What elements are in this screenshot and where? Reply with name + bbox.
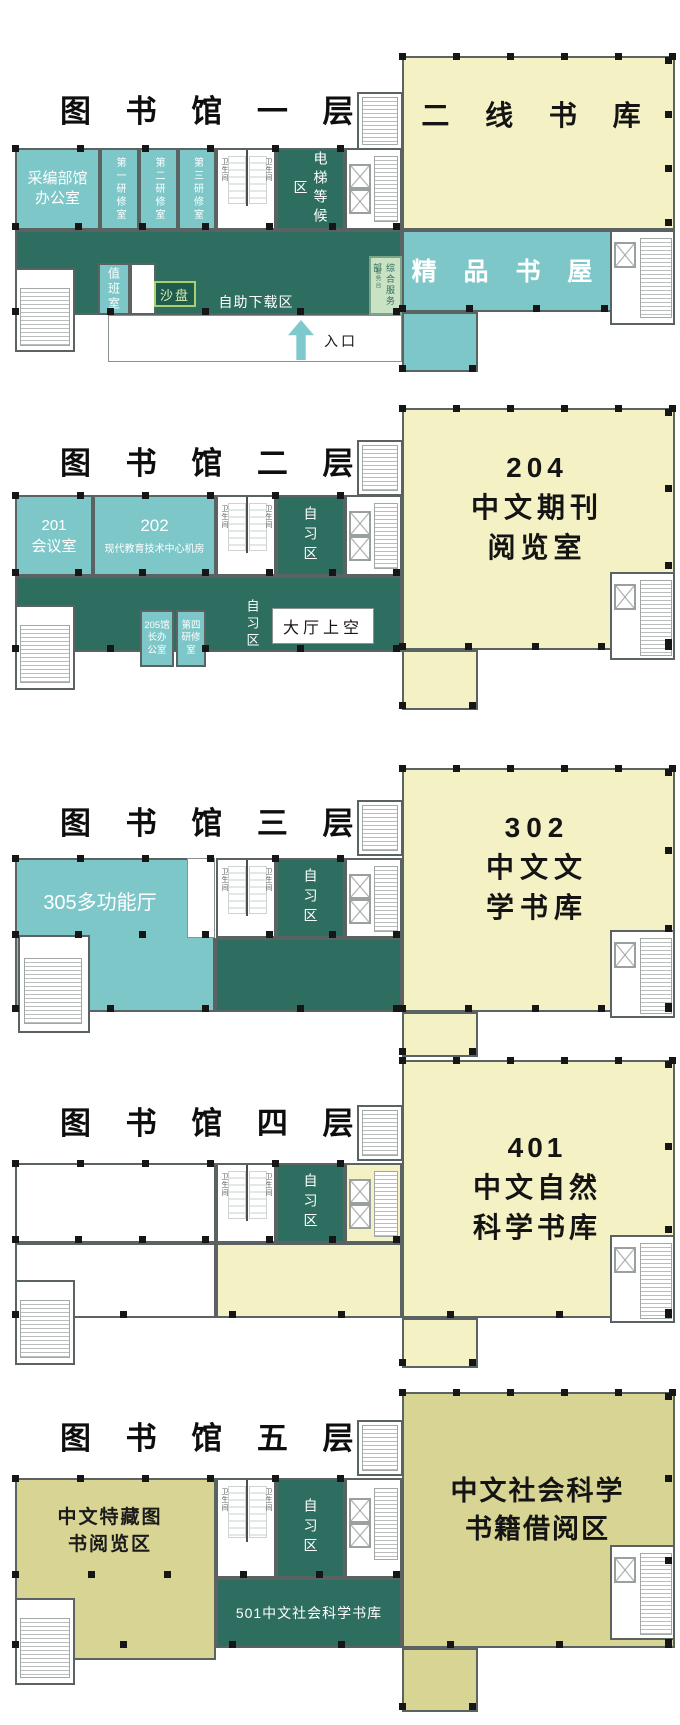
room-social-label: 中文社会科学 书籍借阅区	[405, 1472, 670, 1549]
column-marker	[272, 492, 279, 499]
column-marker	[107, 1005, 114, 1012]
stairs-icon	[640, 1553, 672, 1635]
room-study-4: 第四研修室	[176, 610, 206, 667]
acquisition-label-2: 办公室	[35, 189, 80, 209]
column-marker	[297, 645, 304, 652]
column-marker	[601, 305, 608, 312]
room-302-line1: 中文文	[412, 848, 662, 888]
room-202-tech: 202 现代教育技术中心机房	[93, 495, 216, 576]
column-marker	[453, 53, 460, 60]
room-302-leg	[402, 1012, 478, 1057]
toilets-f3: 卫生间 卫生间	[216, 858, 276, 938]
column-marker	[77, 1475, 84, 1482]
elevator-icon	[349, 536, 371, 561]
column-marker	[229, 1311, 236, 1318]
room-501-stack: 501中文社会科学书库	[216, 1578, 402, 1648]
column-marker	[465, 1005, 472, 1012]
column-marker	[266, 223, 273, 230]
column-marker	[142, 1475, 149, 1482]
column-marker	[337, 1475, 344, 1482]
column-marker	[202, 569, 209, 576]
column-marker	[447, 1311, 454, 1318]
column-marker	[88, 1571, 95, 1578]
room-special-label: 中文特藏图 书阅览区	[25, 1505, 195, 1559]
column-marker	[665, 1226, 672, 1233]
room-305-label: 305多功能厅	[20, 880, 180, 920]
stairs-icon	[20, 625, 70, 683]
toilet-stalls-icon	[228, 1171, 246, 1219]
column-marker	[561, 405, 568, 412]
room-special-line2: 书阅览区	[25, 1532, 195, 1559]
column-marker	[12, 1641, 19, 1648]
column-marker	[665, 1557, 672, 1564]
column-marker	[615, 1389, 622, 1396]
column-marker	[77, 855, 84, 862]
column-marker	[393, 1571, 400, 1578]
toilets-f2: 卫生间 卫生间	[216, 495, 276, 576]
room-study-2: 第二研修室	[139, 148, 178, 230]
column-marker	[316, 1571, 323, 1578]
elevator-icon	[614, 1247, 636, 1273]
column-marker	[207, 492, 214, 499]
elevator-icon	[349, 1204, 371, 1229]
room-study-1: 第一研修室	[100, 148, 139, 230]
column-marker	[75, 569, 82, 576]
stairs-icon	[362, 97, 398, 145]
column-marker	[399, 702, 406, 709]
column-marker	[533, 305, 540, 312]
stairs-icon	[362, 805, 398, 851]
toilet-stalls-icon	[228, 503, 246, 551]
room-401-line1: 中文自然	[412, 1168, 662, 1208]
column-marker	[12, 1236, 19, 1243]
floor2-title: 图 书 馆 二 层	[60, 438, 366, 483]
toilets-f5: 卫生间 卫生间	[216, 1478, 276, 1578]
column-marker	[337, 492, 344, 499]
toilet-divider	[246, 1165, 248, 1221]
column-marker	[665, 1311, 672, 1318]
elevator-icon	[614, 1557, 636, 1583]
toilet-label-left: 卫生间	[219, 1488, 229, 1512]
column-marker	[665, 1143, 672, 1150]
column-marker	[399, 405, 406, 412]
column-marker	[399, 1057, 406, 1064]
column-marker	[266, 931, 273, 938]
column-marker	[207, 145, 214, 152]
stairs-icon	[374, 156, 398, 222]
column-marker	[399, 1389, 406, 1396]
self-download-label: 自助下载区	[210, 292, 302, 312]
elevator-icon	[614, 584, 636, 610]
column-marker	[393, 1236, 400, 1243]
room-201-meeting: 201 会议室	[15, 495, 93, 576]
column-marker	[665, 1475, 672, 1482]
boutique-lobby-stub	[402, 312, 478, 372]
column-marker	[272, 1160, 279, 1167]
column-marker	[665, 643, 672, 650]
column-marker	[75, 931, 82, 938]
column-marker	[399, 1005, 406, 1012]
column-marker	[665, 1641, 672, 1648]
toilet-label-right: 卫生间	[263, 158, 273, 182]
column-marker	[139, 569, 146, 576]
column-marker	[142, 1160, 149, 1167]
column-marker	[615, 53, 622, 60]
column-marker	[556, 1311, 563, 1318]
stairs-icon	[20, 288, 70, 346]
column-marker	[507, 765, 514, 772]
column-marker	[142, 145, 149, 152]
room-elevator-waiting: 电梯等候区	[276, 148, 345, 230]
column-marker	[507, 405, 514, 412]
room-204-line1: 中文期刊	[412, 488, 662, 528]
column-marker	[561, 1057, 568, 1064]
toilet-divider	[246, 1480, 248, 1542]
toilet-stalls-icon	[228, 1486, 246, 1538]
floor5-title: 图 书 馆 五 层	[60, 1413, 366, 1458]
column-marker	[12, 855, 19, 862]
stairs-icon	[362, 1425, 398, 1471]
room-social-line2: 书籍借阅区	[405, 1510, 670, 1548]
room-202-num: 202	[140, 516, 168, 536]
room-202-name: 现代教育技术中心机房	[105, 540, 205, 555]
toilet-label-left: 卫生间	[219, 1173, 229, 1197]
column-marker	[139, 223, 146, 230]
room-study-area-f4: 自习区	[276, 1163, 345, 1243]
column-marker	[665, 1061, 672, 1068]
column-marker	[12, 1160, 19, 1167]
stairs-icon	[362, 1110, 398, 1156]
toilet-label-right: 卫生间	[263, 505, 273, 529]
column-marker	[207, 1160, 214, 1167]
column-marker	[142, 492, 149, 499]
elevator-icon	[614, 242, 636, 268]
column-marker	[202, 1236, 209, 1243]
toilet-stalls-icon	[228, 156, 246, 204]
column-marker	[202, 931, 209, 938]
column-marker	[507, 1057, 514, 1064]
column-marker	[77, 145, 84, 152]
study-area-label-lower-f2: 自习区	[243, 598, 261, 650]
small-room-f1	[130, 263, 156, 315]
column-marker	[297, 308, 304, 315]
elevator-icon	[349, 899, 371, 924]
toilet-label-left: 卫生间	[219, 868, 229, 892]
room-duty: 值班室	[98, 263, 130, 315]
column-marker	[469, 1703, 476, 1710]
stairs-icon	[20, 1300, 70, 1358]
toilets-f4: 卫生间 卫生间	[216, 1163, 276, 1243]
room-204-num: 204	[412, 448, 662, 488]
column-marker	[465, 643, 472, 650]
column-marker	[75, 223, 82, 230]
column-marker	[665, 165, 672, 172]
toilet-label-left: 卫生间	[219, 505, 229, 529]
stairs-icon	[20, 1618, 70, 1678]
column-marker	[469, 1359, 476, 1366]
column-marker	[207, 855, 214, 862]
column-marker	[598, 1005, 605, 1012]
room-social-science-leg	[402, 1648, 478, 1712]
toilet-divider	[246, 497, 248, 553]
room-302-label: 302 中文文 学书库	[412, 808, 662, 927]
room-204-line2: 阅览室	[412, 528, 662, 568]
column-marker	[207, 1475, 214, 1482]
hall-void-box: 大厅上空	[272, 608, 374, 644]
gap-room-f3	[187, 858, 215, 938]
column-marker	[75, 1236, 82, 1243]
column-marker	[453, 1057, 460, 1064]
toilet-label-left: 卫生间	[219, 158, 229, 182]
column-marker	[12, 931, 19, 938]
column-marker	[399, 365, 406, 372]
column-marker	[615, 1057, 622, 1064]
column-marker	[337, 145, 344, 152]
room-social-line1: 中文社会科学	[405, 1472, 670, 1510]
column-marker	[142, 855, 149, 862]
toilet-divider	[246, 860, 248, 916]
column-marker	[266, 569, 273, 576]
column-marker	[139, 1236, 146, 1243]
corridor-yellow-f4	[216, 1243, 402, 1318]
column-marker	[532, 643, 539, 650]
column-marker	[338, 1311, 345, 1318]
room-secondary-stack	[402, 56, 675, 230]
stairs-icon	[374, 866, 398, 932]
column-marker	[77, 492, 84, 499]
empty-room-f4	[15, 1163, 216, 1243]
sand-table: 沙盘	[154, 281, 196, 307]
stairs-icon	[374, 503, 398, 569]
elevator-icon	[349, 874, 371, 899]
column-marker	[12, 223, 19, 230]
column-marker	[77, 1160, 84, 1167]
column-marker	[12, 569, 19, 576]
column-marker	[393, 223, 400, 230]
room-302-line2: 学书库	[412, 888, 662, 928]
column-marker	[202, 223, 209, 230]
column-marker	[399, 643, 406, 650]
column-marker	[12, 1005, 19, 1012]
column-marker	[453, 765, 460, 772]
column-marker	[665, 111, 672, 118]
column-marker	[12, 145, 19, 152]
room-401-label: 401 中文自然 科学书库	[412, 1128, 662, 1247]
column-marker	[107, 308, 114, 315]
column-marker	[556, 1641, 563, 1648]
column-marker	[12, 645, 19, 652]
column-marker	[399, 765, 406, 772]
room-302-num: 302	[412, 808, 662, 848]
column-marker	[447, 1641, 454, 1648]
elevator-icon	[614, 942, 636, 968]
stairs-icon	[374, 1171, 398, 1237]
room-study-3: 第三研修室	[178, 148, 216, 230]
column-marker	[615, 765, 622, 772]
toilet-stalls-icon	[228, 866, 246, 914]
column-marker	[469, 365, 476, 372]
column-marker	[272, 145, 279, 152]
stairs-icon	[374, 1488, 398, 1560]
column-marker	[202, 1005, 209, 1012]
column-marker	[665, 562, 672, 569]
room-special-line1: 中文特藏图	[25, 1505, 195, 1532]
boutique-label: 精 品 书 屋	[408, 248, 606, 292]
column-marker	[399, 1048, 406, 1055]
column-marker	[665, 57, 672, 64]
column-marker	[337, 1160, 344, 1167]
column-marker	[399, 305, 406, 312]
stairs-icon	[362, 445, 398, 491]
column-marker	[665, 847, 672, 854]
room-401-num: 401	[412, 1128, 662, 1168]
column-marker	[229, 1641, 236, 1648]
column-marker	[453, 1389, 460, 1396]
column-marker	[202, 645, 209, 652]
column-marker	[399, 1703, 406, 1710]
column-marker	[12, 308, 19, 315]
elevator-icon	[349, 164, 371, 189]
toilet-label-right: 卫生间	[263, 1488, 273, 1512]
room-study-area-f2: 自习区	[276, 495, 345, 576]
column-marker	[12, 492, 19, 499]
column-marker	[329, 569, 336, 576]
room-201-num: 201	[41, 515, 66, 536]
column-marker	[561, 53, 568, 60]
column-marker	[665, 1005, 672, 1012]
column-marker	[665, 219, 672, 226]
column-marker	[399, 1359, 406, 1366]
room-204-leg	[402, 650, 478, 710]
column-marker	[240, 1571, 247, 1578]
column-marker	[272, 1475, 279, 1482]
column-marker	[139, 931, 146, 938]
column-marker	[107, 645, 114, 652]
library-floorplan-canvas: 图 书 馆 一 层 二 线 书 库 采编部馆 办公室 第一研修室 第二研修室 第…	[0, 0, 680, 1725]
column-marker	[329, 931, 336, 938]
room-acquisition-office: 采编部馆 办公室	[15, 148, 100, 230]
column-marker	[297, 1005, 304, 1012]
column-marker	[120, 1311, 127, 1318]
column-marker	[469, 702, 476, 709]
column-marker	[337, 855, 344, 862]
column-marker	[12, 1311, 19, 1318]
column-marker	[507, 53, 514, 60]
column-marker	[507, 1389, 514, 1396]
elevator-icon	[349, 1523, 371, 1548]
column-marker	[164, 1571, 171, 1578]
column-marker	[665, 1393, 672, 1400]
column-marker	[266, 1236, 273, 1243]
column-marker	[665, 769, 672, 776]
column-marker	[665, 925, 672, 932]
floor3-title: 图 书 馆 三 层	[60, 798, 366, 843]
room-201-name: 会议室	[31, 536, 76, 557]
floor4-title: 图 书 馆 四 层	[60, 1098, 366, 1143]
column-marker	[202, 308, 209, 315]
column-marker	[532, 1005, 539, 1012]
column-marker	[329, 223, 336, 230]
acquisition-label-1: 采编部馆	[27, 169, 87, 189]
room-205-dean: 205馆长办公室	[140, 610, 174, 667]
room-401-leg	[402, 1318, 478, 1368]
column-marker	[466, 305, 473, 312]
service-desk-label: 服务台	[373, 268, 382, 289]
column-marker	[393, 931, 400, 938]
elevator-icon	[349, 511, 371, 536]
elevator-icon	[349, 189, 371, 214]
column-marker	[393, 569, 400, 576]
column-marker	[598, 643, 605, 650]
column-marker	[561, 1389, 568, 1396]
column-marker	[329, 1236, 336, 1243]
toilet-divider	[246, 150, 248, 206]
room-study-area-f5: 自习区	[276, 1478, 345, 1578]
toilets-f1: 卫生间 卫生间	[216, 148, 276, 230]
column-marker	[453, 405, 460, 412]
stairs-icon	[640, 238, 672, 318]
toilet-label-right: 卫生间	[263, 1173, 273, 1197]
column-marker	[12, 1571, 19, 1578]
column-marker	[120, 1641, 127, 1648]
elevator-icon	[349, 1498, 371, 1523]
column-marker	[469, 1048, 476, 1055]
column-marker	[338, 1641, 345, 1648]
stairs-icon	[24, 958, 82, 1024]
column-marker	[272, 855, 279, 862]
floor1-title: 图 书 馆 一 层	[60, 86, 366, 131]
column-marker	[12, 1475, 19, 1482]
column-marker	[399, 53, 406, 60]
room-secondary-stack-label: 二 线 书 库	[408, 96, 668, 136]
entrance-label: 入口	[324, 331, 358, 351]
column-marker	[665, 409, 672, 416]
room-service-dept: 综合服务部 服务台	[369, 256, 402, 315]
toilet-label-right: 卫生间	[263, 868, 273, 892]
room-study-area-f3: 自习区	[276, 858, 345, 938]
room-204-label: 204 中文期刊 阅览室	[412, 448, 662, 567]
column-marker	[665, 485, 672, 492]
column-marker	[561, 765, 568, 772]
elevator-icon	[349, 1179, 371, 1204]
column-marker	[615, 405, 622, 412]
corridor-f3	[215, 938, 402, 1012]
